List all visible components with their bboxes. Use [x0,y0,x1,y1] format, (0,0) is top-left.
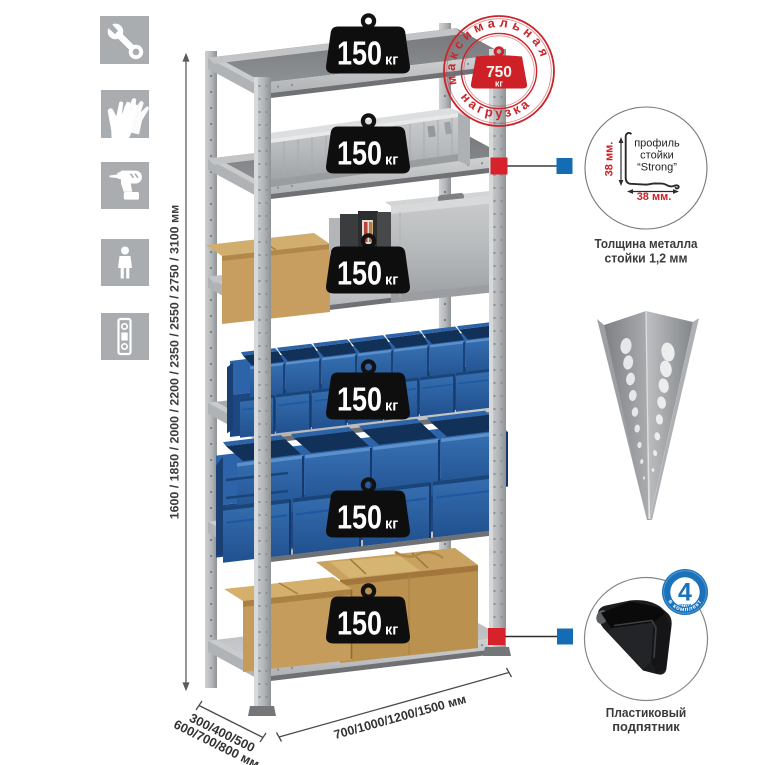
svg-text:150: 150 [337,135,382,172]
svg-text:кг: кг [385,153,398,169]
svg-text:подпятник: подпятник [612,719,680,734]
svg-text:кг: кг [495,79,504,89]
svg-text:38 мм.: 38 мм. [637,191,672,203]
svg-text:стойки: стойки [640,150,674,162]
svg-text:150: 150 [337,381,382,418]
svg-text:150: 150 [337,605,382,642]
svg-text:кг: кг [385,53,398,69]
svg-text:кг: кг [385,399,398,415]
svg-text:150: 150 [337,255,382,292]
svg-text:кг: кг [385,273,398,289]
svg-text:1600 / 1850 / 2000 / 2200 / 23: 1600 / 1850 / 2000 / 2200 / 2350 / 2550 … [168,205,182,520]
svg-text:Толщина металла: Толщина металла [595,236,699,251]
svg-text:150: 150 [337,35,382,72]
svg-text:профиль: профиль [634,138,680,150]
svg-text:“Strong”: “Strong” [637,162,677,174]
svg-text:кг: кг [385,517,398,533]
svg-text:150: 150 [337,499,382,536]
svg-text:кг: кг [385,623,398,639]
svg-text:стойки 1,2 мм: стойки 1,2 мм [605,251,688,266]
svg-text:Пластиковый: Пластиковый [606,705,687,720]
svg-text:38 мм.: 38 мм. [604,142,616,177]
